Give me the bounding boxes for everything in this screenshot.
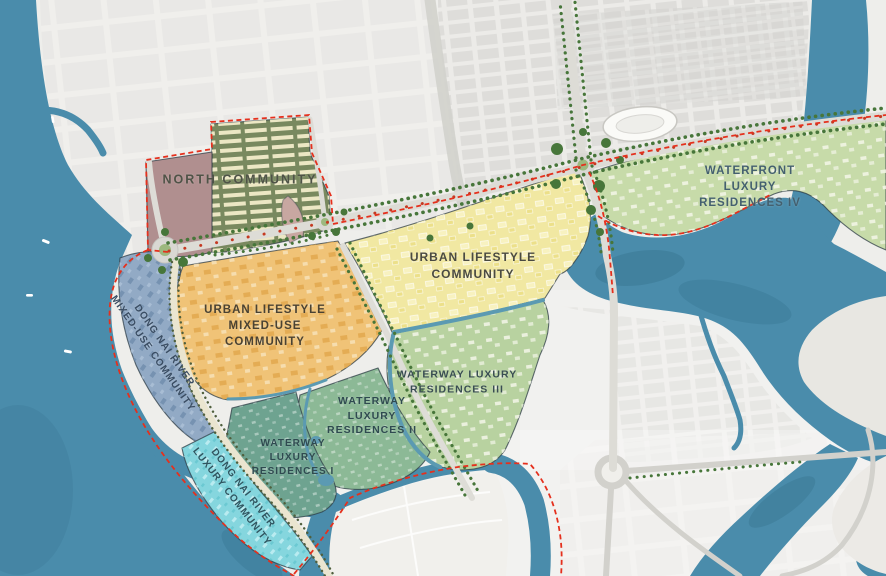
master-plan-map: [0, 0, 886, 576]
master-plan-screenshot: NORTH COMMUNITY WATERFRONT LUXURY RESIDE…: [0, 0, 886, 576]
